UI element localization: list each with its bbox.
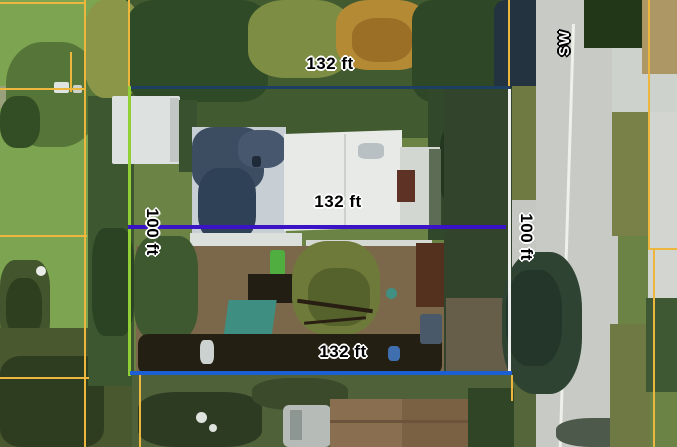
east-ground [446,298,510,376]
verge-grass [610,324,650,447]
parcel-line [648,0,650,250]
brown-roof-shaded [402,399,472,447]
tree-canopy [468,388,514,447]
measurement-line-middle [128,225,506,229]
shed-roof-edge [170,98,179,162]
parcel-line [139,375,141,447]
parcel-line [70,52,72,92]
tree-canopy [584,0,648,48]
red-shed [416,243,444,307]
roof-vent [252,156,261,167]
dimension-label-bottom: 132 ft [283,340,403,364]
parcel-line [0,88,85,90]
roof-tree-shadow [198,168,256,242]
car [420,314,442,344]
walkway [190,233,302,246]
yard-object [386,288,397,299]
dimension-label-right: 100 ft [514,187,538,287]
parcel-line [508,0,510,88]
aerial-map[interactable]: 132 ft 132 ft 132 ft 100 ft 100 ft SW [0,0,677,447]
tree-canopy [646,298,677,392]
measurement-line-left [128,86,131,376]
roof-tree-shadow [238,130,286,168]
measurement-line-bottom [130,371,512,375]
roof-patch [358,143,384,159]
yard-object [200,340,214,364]
tree-shadow [0,96,40,148]
ground-object [209,424,217,432]
parcel-line [84,0,86,447]
parcel-line [511,375,513,401]
parcel-line [0,377,89,379]
dimension-label-middle: 132 ft [278,190,398,214]
parcel-line [128,0,130,88]
teal-tarp [223,300,276,338]
dimension-label-left: 100 ft [140,182,164,282]
parcel-line [0,235,87,237]
chimney [397,170,415,202]
measurement-line-top [128,86,510,89]
roof-edge-shadow [429,149,441,225]
verge-grass [612,104,650,236]
street-name-label: SW [554,0,576,56]
ground-object [196,412,207,423]
measurement-line-right [508,89,511,375]
brown-roof-ridge [330,420,472,423]
gray-structure-shadow [290,410,302,440]
dimension-label-top: 132 ft [270,52,390,76]
shade-structure [248,274,293,303]
ground-object [36,266,46,276]
house-roof-center [284,130,402,231]
parcel-line [653,250,655,447]
parcel-line [0,2,86,4]
